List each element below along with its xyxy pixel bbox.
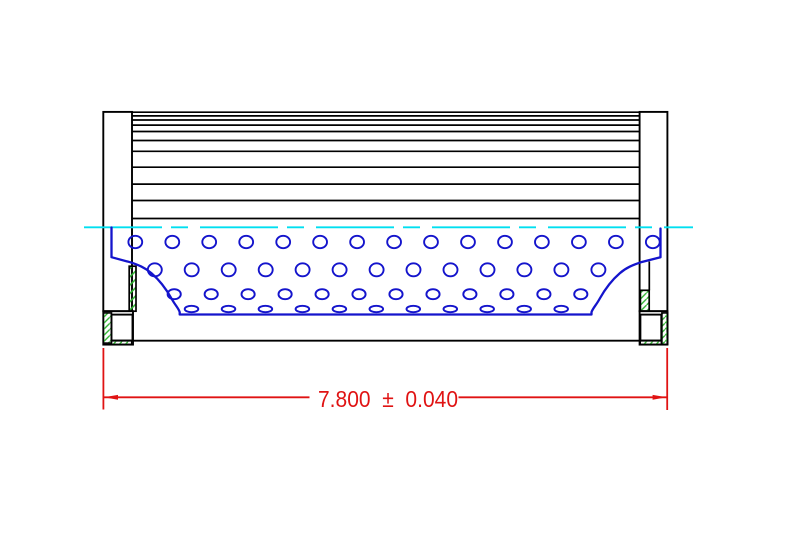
svg-text:7.800 ± 0.040: 7.800 ± 0.040 [318, 386, 458, 412]
